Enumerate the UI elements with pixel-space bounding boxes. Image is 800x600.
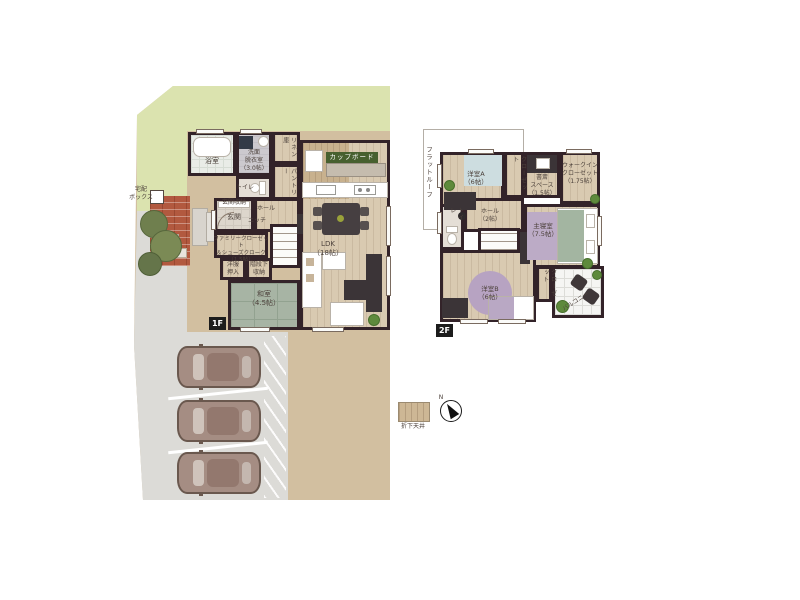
tv [344,280,366,300]
window [386,206,391,246]
floor1-badge: 1F [209,317,226,330]
sink [258,136,269,147]
label-master-bedroom: 主寝室 （7.5帖） [526,222,560,239]
study-desk [536,158,550,169]
car-rear-window [242,410,251,432]
car-windshield [193,460,204,486]
label-ldk: LDK （18帖） [306,240,350,258]
window [386,256,391,296]
label-linen: リネン庫 [281,137,297,161]
label-pantry: パントリー [281,168,297,198]
toilet-icon [447,233,457,245]
sofa-cushion [306,274,314,282]
pillow [586,240,595,254]
window [566,149,592,154]
stove-burner [358,188,362,192]
floor-plan-canvas: 宅配 ボックス 浴室 洗面 脱衣室 （3.0帖） リネン庫 パントリー [0,0,800,600]
dining-chair [360,221,369,230]
car-windshield [193,408,204,434]
car-mirror [199,450,203,453]
pillow [586,214,595,228]
window [437,212,442,234]
car [177,452,261,494]
window [196,129,224,134]
car-mirror [199,398,203,401]
window [468,149,494,154]
refrigerator [305,150,323,172]
label-entrance-storage: 玄関収納 [212,199,256,207]
label-closet-1f: 洋服 押入 [220,261,246,277]
compass-north-label: N [436,394,446,402]
label-tatami: 和室 （4.5帖） [228,290,300,308]
cupboard-badge: カップボード [326,152,378,163]
tree-icon [138,252,162,276]
legend-dropped-ceiling-label: 折下天井 [392,423,434,431]
niche-shelf [297,214,303,234]
window [240,327,270,332]
dining-chair [360,207,369,216]
car-windshield [193,354,204,380]
car [177,346,261,388]
window [597,216,602,246]
car-rear-window [242,462,251,484]
compass-needle [443,401,459,419]
hatch-area [264,336,286,498]
study-counter [330,302,364,326]
label-toilet-2f: トイレ [448,207,464,227]
bathtub [193,137,231,157]
plant-icon [444,180,455,191]
dining-chair [313,221,322,230]
plant-icon [582,258,593,269]
stove-burner [366,188,370,192]
car-mirror [199,493,203,496]
label-niche: ニッチ [245,217,269,225]
table-bowl [337,215,344,222]
window [240,129,262,134]
label-toilet-1f: トイレ [234,184,256,192]
label-under-stairs: 階段下 収納 [246,261,272,277]
dining-chair [313,207,322,216]
plant-icon [590,194,600,204]
bed-blanket [558,210,584,262]
label-wic: ウォークイン クローゼット （1.75帖） [556,162,604,185]
label-bath: 浴室 [188,157,236,166]
car-roof [207,459,239,487]
label-closet-b: クローゼット [541,269,557,299]
label-family-closet: ファミリークローゼット ＆シューズクローク （1.5帖） [212,235,269,264]
label-hall-1f: ホール [252,205,280,213]
toilet-icon [446,226,458,233]
washing-machine [239,136,253,149]
label-hall-2f: ホール （2帖） [476,208,504,224]
kitchen-sink [316,185,336,195]
car-roof [207,407,239,435]
car-roof [207,353,239,381]
car-mirror [199,441,203,444]
legend-dropped-ceiling-swatch [398,402,430,422]
car [177,400,261,442]
tv-board [366,254,382,312]
car-rear-window [242,356,251,378]
label-flat-roof: フラットルーフ [424,146,432,226]
car-mirror [199,387,203,390]
label-delivery-box: 宅配 ボックス [128,186,154,202]
plant-icon [592,270,602,280]
north-arrow-icon [440,400,462,422]
floor2-badge: 2F [436,324,453,337]
desk [442,298,468,318]
window [312,327,344,332]
cupboard-counter [326,163,386,177]
label-washroom: 洗面 脱衣室 （3.0帖） [234,149,274,172]
window [498,319,526,324]
label-bedroom-b: 洋室B （6帖） [472,285,508,302]
window [437,164,442,188]
car-mirror [199,344,203,347]
plant-icon [368,314,380,326]
stairs-1f [270,224,300,268]
label-bedroom-a: 洋室A （6帖） [456,170,496,187]
sofa-cushion [306,258,314,266]
toilet-icon [259,181,266,195]
window [460,319,488,324]
